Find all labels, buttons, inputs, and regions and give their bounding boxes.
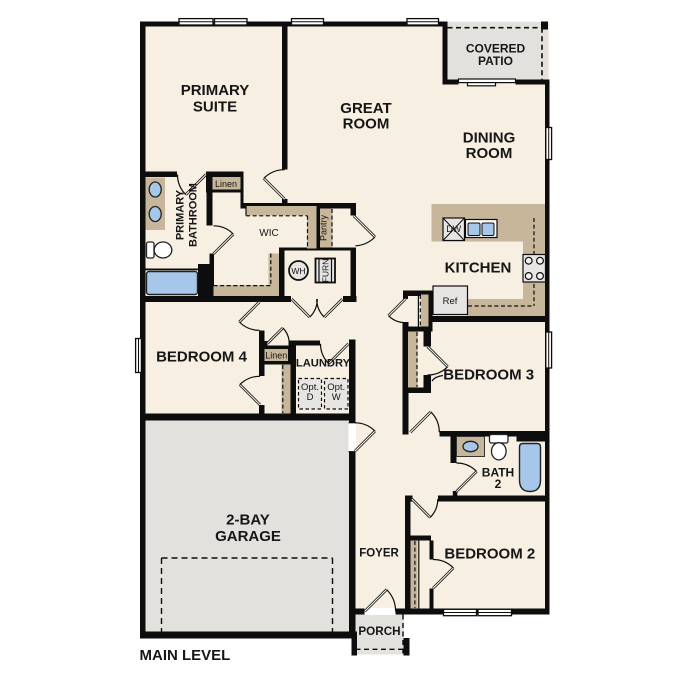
svg-text:KITCHEN: KITCHEN xyxy=(445,259,512,276)
svg-text:GREAT: GREAT xyxy=(340,100,391,117)
svg-text:FURN: FURN xyxy=(320,259,330,283)
svg-text:BATHROOM: BATHROOM xyxy=(188,183,200,247)
svg-text:2: 2 xyxy=(495,477,502,491)
svg-text:PATIO: PATIO xyxy=(478,54,513,68)
svg-text:BEDROOM 4: BEDROOM 4 xyxy=(156,348,248,365)
svg-text:PRIMARY: PRIMARY xyxy=(175,189,187,240)
svg-text:D: D xyxy=(307,392,314,403)
svg-text:BEDROOM 3: BEDROOM 3 xyxy=(443,367,534,384)
svg-text:DW: DW xyxy=(446,224,461,234)
svg-text:W: W xyxy=(332,392,341,403)
svg-text:2-BAY: 2-BAY xyxy=(226,512,270,529)
svg-text:FOYER: FOYER xyxy=(359,547,399,559)
svg-text:BEDROOM 2: BEDROOM 2 xyxy=(444,546,535,563)
svg-text:MAIN LEVEL: MAIN LEVEL xyxy=(140,647,231,664)
svg-text:DINING: DINING xyxy=(463,129,516,146)
svg-text:Linen: Linen xyxy=(265,351,287,361)
svg-text:GARAGE: GARAGE xyxy=(215,528,281,545)
svg-text:SUITE: SUITE xyxy=(193,98,237,115)
svg-text:ROOM: ROOM xyxy=(466,145,513,162)
svg-text:PRIMARY: PRIMARY xyxy=(181,82,250,99)
svg-text:Ref: Ref xyxy=(443,296,458,307)
svg-text:ROOM: ROOM xyxy=(343,115,390,132)
svg-text:LAUNDRY: LAUNDRY xyxy=(296,358,351,370)
svg-text:Linen: Linen xyxy=(215,179,237,189)
svg-text:WH: WH xyxy=(291,266,305,276)
svg-text:Pantry: Pantry xyxy=(319,214,329,241)
svg-text:PORCH: PORCH xyxy=(358,625,400,638)
svg-text:WIC: WIC xyxy=(259,228,278,239)
